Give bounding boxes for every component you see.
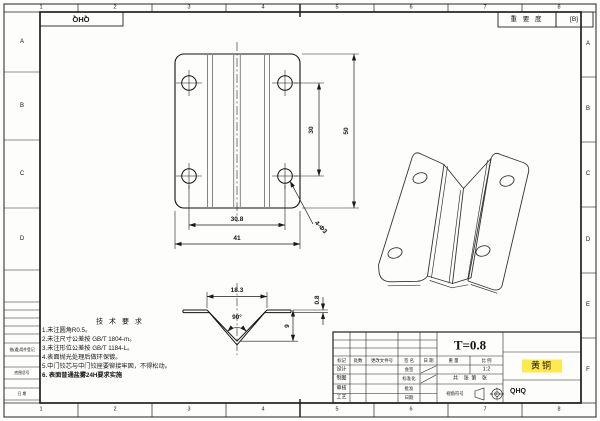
margin-box-label: 借(通)用件登记 <box>9 348 34 352</box>
tb-scale-label: 比 例 <box>481 358 491 362</box>
tech-item: 6. 表面普通盐雾24H要求实施 <box>42 373 122 379</box>
dim-hole-pitch-y: 30 <box>309 126 316 133</box>
zone-col: 7 <box>483 407 486 413</box>
tb-sheets: 共 张 第 张 <box>453 377 487 382</box>
zone-row: E <box>586 302 590 308</box>
zone-row: A <box>20 39 24 45</box>
tb-scale-value: 1:2 <box>483 367 491 373</box>
projection-symbol <box>475 388 504 401</box>
zone-col: 2 <box>113 407 116 413</box>
zone-col: 6 <box>409 5 412 11</box>
thickness-value: T=0.8 <box>454 339 486 352</box>
zone-col: 5 <box>335 5 338 11</box>
zone-row: D <box>586 237 590 243</box>
zone-row: A <box>586 41 590 47</box>
zone-row: C <box>586 171 590 177</box>
zone-row: C <box>20 171 24 177</box>
dim-height: 50 <box>344 127 351 134</box>
tech-item: 3.未注形位公差按 GB/T 1184-L。 <box>42 346 133 352</box>
zone-row: D <box>20 236 24 242</box>
zone-col: 2 <box>113 5 116 11</box>
isometric-view <box>379 153 529 293</box>
tb-countersign: 会签 <box>405 367 414 371</box>
tb-standardize: 标准化 <box>402 377 415 381</box>
tb-header-change-doc: 更改文件号 <box>371 358 393 362</box>
tb-header-signature: 签 名 <box>404 358 414 362</box>
zone-col: 1 <box>39 5 42 11</box>
zone-col: 3 <box>187 5 190 11</box>
drawing-code: QHQ <box>510 388 526 395</box>
tb-check: 审核 <box>336 386 346 391</box>
flat-view <box>175 42 359 249</box>
importance-label: 重 要 度 <box>510 16 543 23</box>
dim-width: 41 <box>233 236 240 243</box>
dim-thickness: 0.8 <box>315 295 322 304</box>
tech-item: 5.中门铰芯与中门铰座要铆接牢固，不得松动。 <box>42 364 171 370</box>
dim-hole-pitch-x: 30.8 <box>231 217 244 224</box>
zone-row: B <box>586 106 590 112</box>
tech-item: 2.未注尺寸公差按 GB/T 1804-m。 <box>42 337 135 343</box>
tb-view-symbol-label: 视角符号 <box>446 391 464 395</box>
zone-row: B <box>20 103 24 109</box>
tb-approve: 批准 <box>405 386 414 390</box>
drawing-sheet: 1 2 3 4 5 6 7 8 1 2 3 4 5 6 7 8 A B C D … <box>0 0 600 421</box>
margin-box-label: 底图总号 <box>14 371 29 375</box>
dim-top-width: 18.3 <box>231 288 244 295</box>
tb-weight-label: 重 量 <box>448 358 458 362</box>
zone-col: 1 <box>39 407 42 413</box>
tb-header-count: 处数 <box>354 358 363 362</box>
zone-col: 4 <box>261 5 264 11</box>
tech-item: 4.表面抛光处理后做环保镀。 <box>42 355 121 361</box>
profile-view <box>183 283 328 355</box>
dim-angle: 90° <box>232 315 242 322</box>
zone-col: 5 <box>335 407 338 413</box>
tech-title: 技 术 要 求 <box>96 319 144 326</box>
dim-depth: 9 <box>284 324 291 328</box>
tb-process: 工艺 <box>336 396 346 401</box>
tb-date: 日期 <box>405 396 414 400</box>
zone-col: 3 <box>187 407 190 413</box>
tb-header-date: 日 期 <box>423 358 433 362</box>
corner-code-rotated: QHQ <box>72 15 89 23</box>
zone-col: 8 <box>557 5 560 11</box>
zone-col: 8 <box>557 407 560 413</box>
tb-draft: 制图 <box>336 377 346 382</box>
zone-col: 6 <box>409 407 412 413</box>
zone-row: F <box>586 367 590 373</box>
importance-value: [B] <box>570 16 578 23</box>
tech-item: 1.未注圆角R0.5。 <box>42 328 91 334</box>
material-value: 黄铜 <box>522 360 562 373</box>
tb-header-mark: 标记 <box>337 358 346 362</box>
zone-col: 4 <box>261 407 264 413</box>
margin-box-label: 日 期 <box>18 392 27 396</box>
tb-design: 设计 <box>336 367 346 372</box>
zone-col: 7 <box>483 5 486 11</box>
